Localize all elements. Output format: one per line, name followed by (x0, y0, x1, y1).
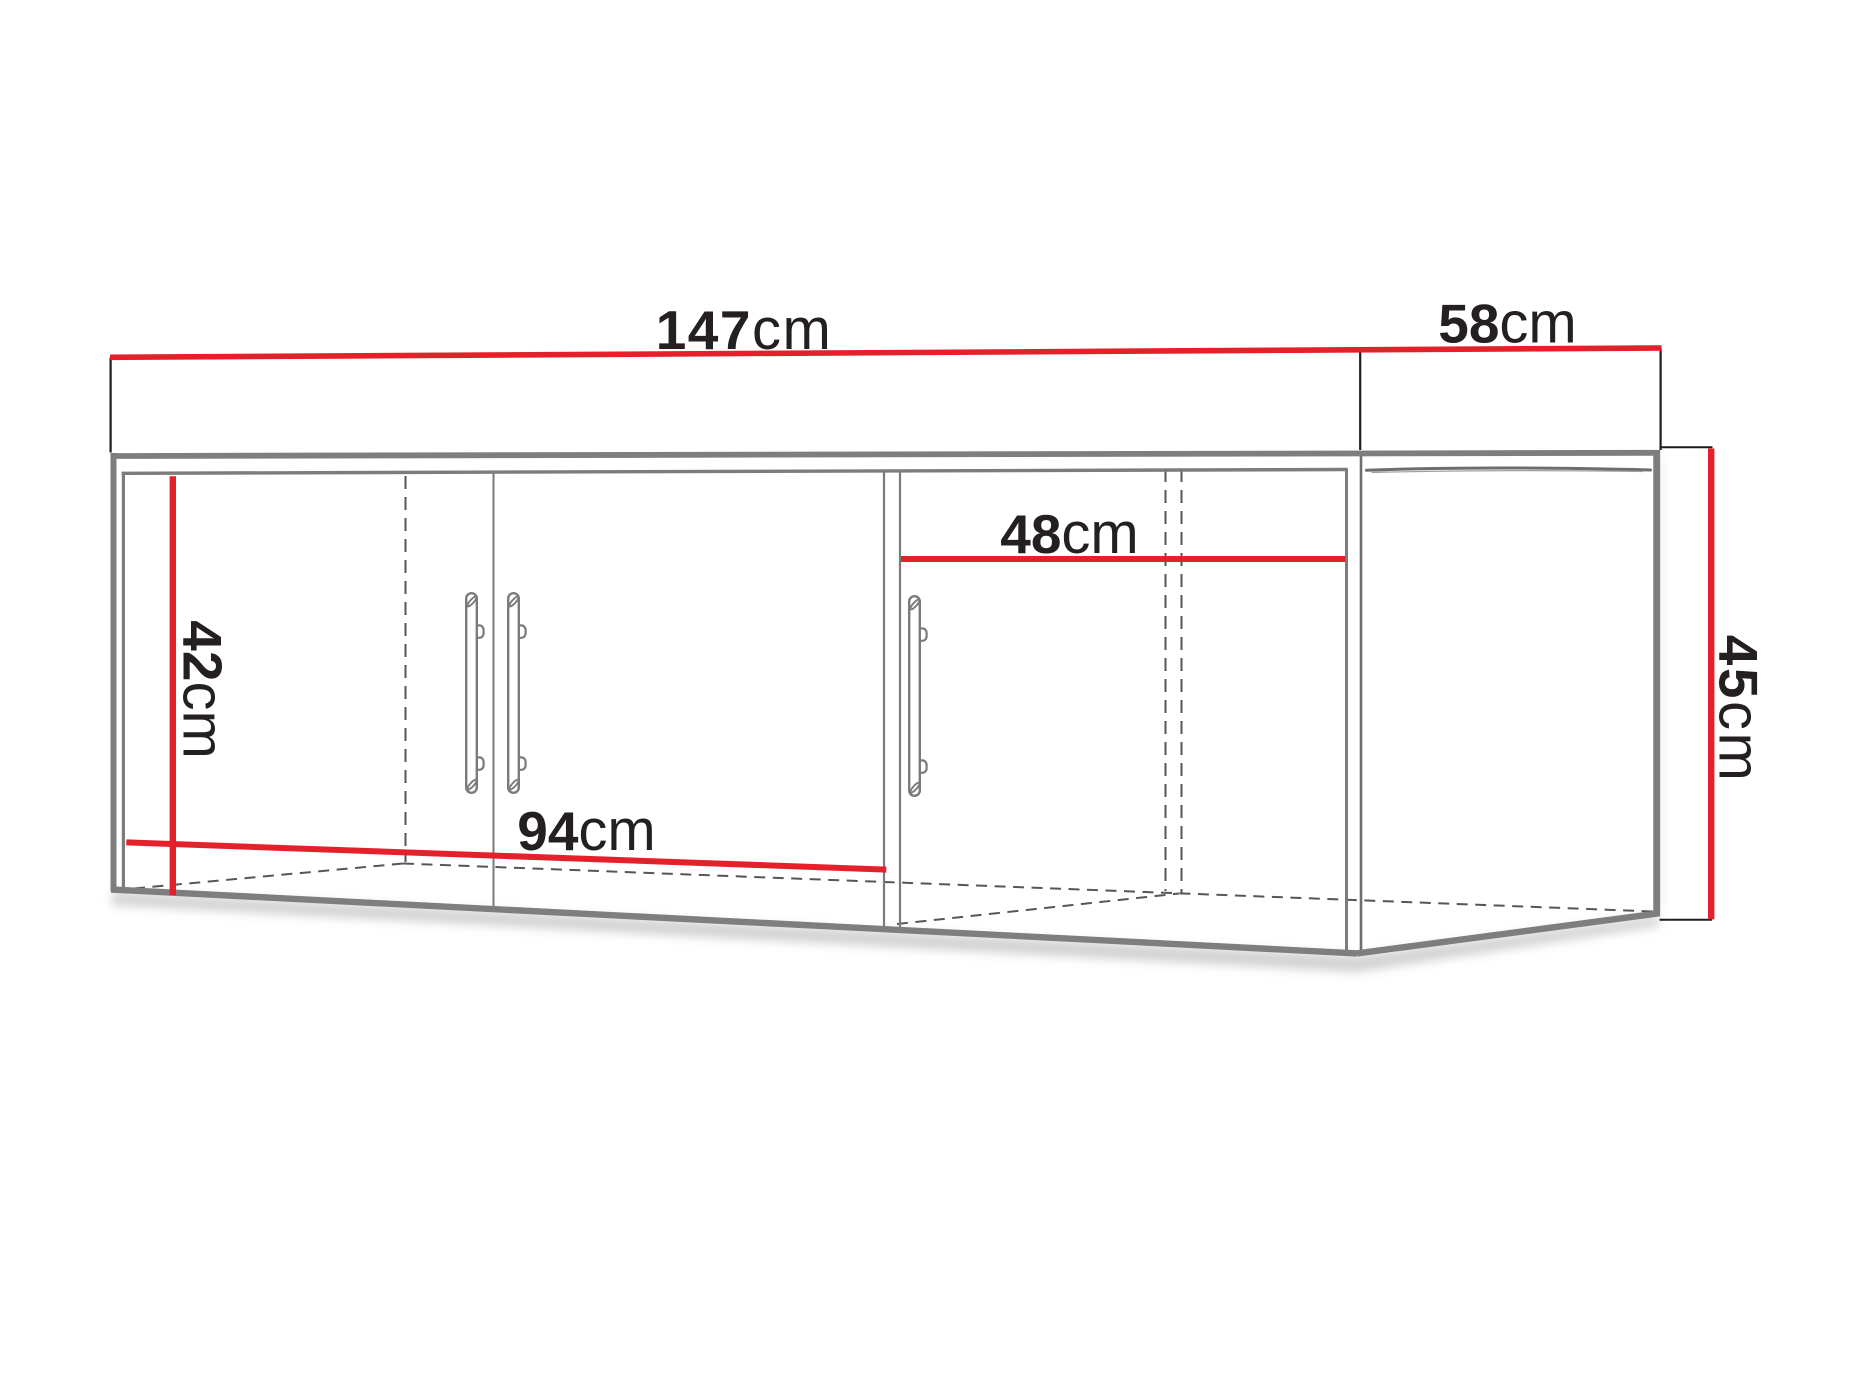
svg-text:58cm: 58cm (1438, 291, 1577, 356)
svg-text:48cm: 48cm (1000, 501, 1139, 566)
svg-text:42cm: 42cm (171, 620, 236, 759)
svg-text:147cm: 147cm (656, 297, 833, 362)
svg-text:94cm: 94cm (517, 798, 656, 863)
svg-text:45cm: 45cm (1707, 635, 1772, 784)
